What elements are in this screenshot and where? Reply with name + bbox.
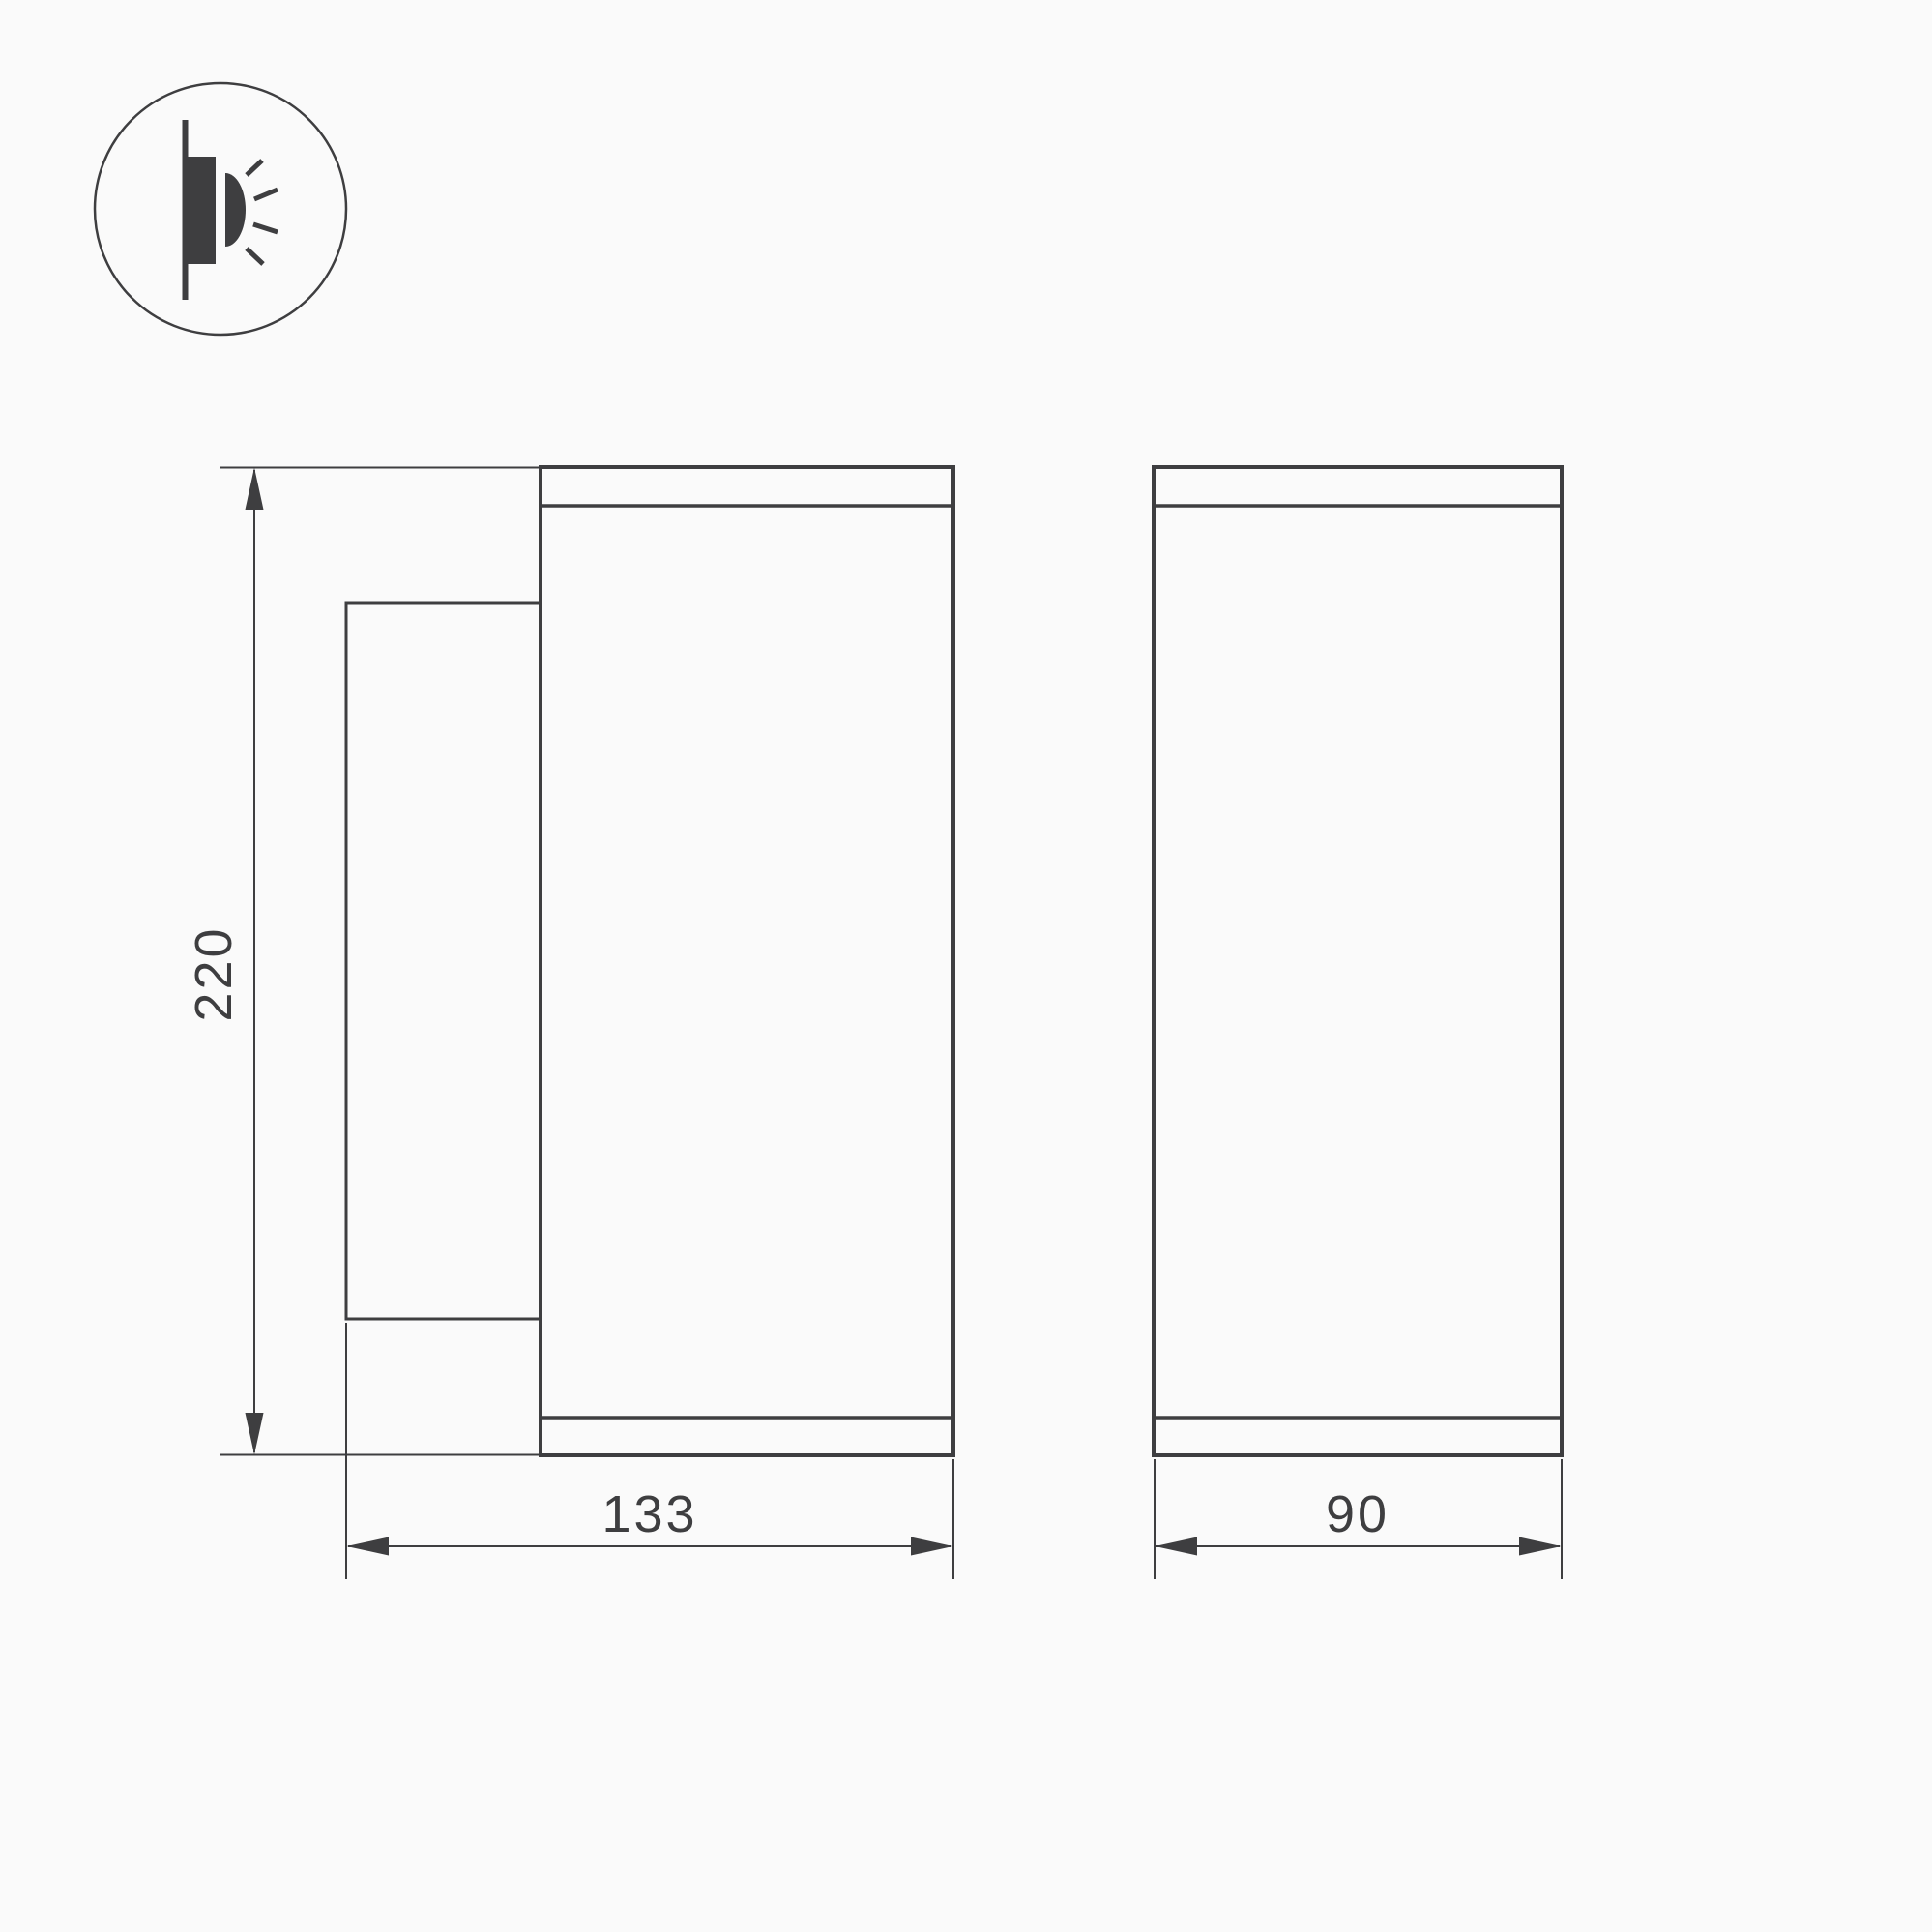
depth-arrow-left: [347, 1537, 390, 1556]
luminaire-dimension-drawing: 220 133 90: [0, 0, 1932, 1932]
front-view: [1154, 467, 1562, 1455]
height-arrow-up: [246, 468, 264, 511]
icon-light-ray: [247, 161, 262, 175]
width-dimension-label: 90: [1326, 1485, 1390, 1543]
icon-light-ray: [254, 190, 278, 199]
side-view-body: [541, 467, 953, 1455]
wall-lamp-light-emission-icon: [95, 83, 346, 335]
height-dimension: 220: [185, 468, 539, 1455]
icon-light-ray: [247, 249, 263, 264]
width-arrow-right: [1519, 1537, 1562, 1556]
depth-dimension-label: 133: [601, 1485, 697, 1543]
icon-light-rays: [247, 161, 278, 264]
technical-drawing-page: 220 133 90: [0, 0, 1932, 1932]
front-view-body: [1154, 467, 1562, 1455]
width-dimension: 90: [1155, 1459, 1562, 1579]
icon-light-ray: [253, 224, 278, 232]
depth-arrow-right: [911, 1537, 953, 1556]
icon-lamp-body: [187, 157, 216, 264]
height-arrow-down: [246, 1413, 264, 1455]
width-arrow-left: [1156, 1537, 1198, 1556]
icon-circle-border: [95, 83, 346, 335]
height-dimension-label: 220: [185, 925, 243, 1021]
side-view: [346, 467, 953, 1455]
icon-light-lens: [225, 173, 246, 247]
depth-dimension: 133: [346, 1323, 953, 1579]
side-view-wall-plate: [346, 603, 541, 1319]
